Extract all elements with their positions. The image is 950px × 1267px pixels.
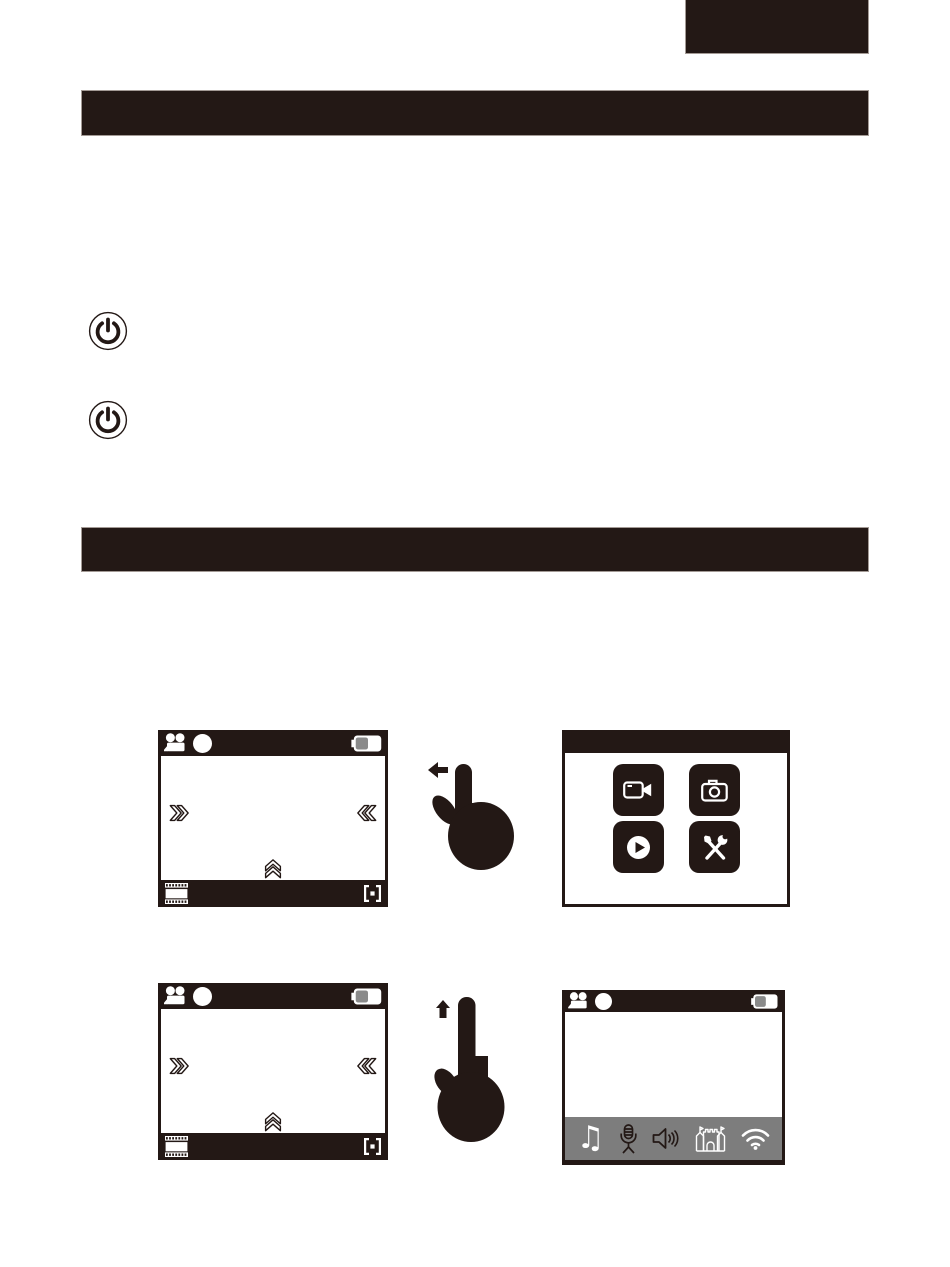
menu-grid: [565, 753, 787, 904]
photo-camera-icon: [701, 779, 728, 802]
quick-settings-screen: ♫: [562, 990, 785, 1165]
settings-toolbar: ♫: [565, 1117, 782, 1160]
corner-tab: [685, 0, 869, 54]
footer-bar: [158, 880, 388, 907]
status-bar: [158, 730, 388, 756]
play-icon: [626, 835, 651, 860]
settings-mode-button: [689, 821, 740, 873]
power-icon: [88, 311, 128, 351]
video-recorder-icon: [164, 986, 188, 1006]
footer-bar: [158, 1133, 388, 1160]
wifi-icon: [741, 1128, 770, 1150]
camera-live-view-screen: [158, 983, 388, 1160]
section-header-bar-2: [81, 527, 869, 572]
viewfinder: [161, 1009, 385, 1133]
swipe-left-hand-icon: [424, 758, 516, 872]
focus-frame-icon: [364, 885, 381, 902]
battery-icon: [750, 994, 779, 1009]
photo-mode-button: [689, 764, 740, 816]
power-icon: [88, 400, 128, 440]
status-bar: [562, 990, 785, 1012]
video-recorder-icon: [164, 733, 188, 753]
menu-title-bar: [562, 730, 790, 753]
film-strip-icon: [165, 883, 189, 904]
section-header-bar-1: [81, 90, 869, 136]
battery-icon: [351, 988, 382, 1005]
double-chevron-right-icon: [169, 804, 189, 822]
viewfinder: [565, 1012, 782, 1117]
tools-icon: [701, 834, 728, 861]
manual-page: ♫: [0, 0, 950, 1267]
video-recorder-icon: [568, 992, 590, 1010]
arrow-left: [428, 762, 448, 778]
record-dot: [193, 987, 212, 1006]
music-note-icon: ♫: [577, 1123, 605, 1154]
video-camera-icon: [623, 780, 653, 800]
viewfinder: [161, 756, 385, 880]
status-bar: [158, 983, 388, 1009]
arrow-up: [436, 1000, 450, 1018]
double-chevron-left-icon: [357, 804, 377, 822]
camera-live-view-screen: [158, 730, 388, 907]
double-chevron-left-icon: [357, 1057, 377, 1075]
battery-icon: [351, 735, 382, 752]
double-chevron-up-icon: [264, 859, 282, 879]
castle-icon: [695, 1125, 726, 1152]
video-mode-button: [613, 764, 664, 816]
double-chevron-right-icon: [169, 1057, 189, 1075]
playback-mode-button: [613, 821, 664, 873]
swipe-up-hand-icon: [427, 996, 509, 1144]
film-strip-icon: [165, 1136, 189, 1157]
microphone-icon: [620, 1124, 637, 1154]
record-dot: [595, 993, 612, 1010]
mode-menu-screen: [562, 730, 790, 907]
focus-frame-icon: [364, 1138, 381, 1155]
record-dot: [193, 734, 212, 753]
double-chevron-up-icon: [264, 1112, 282, 1132]
speaker-icon: [652, 1127, 680, 1150]
